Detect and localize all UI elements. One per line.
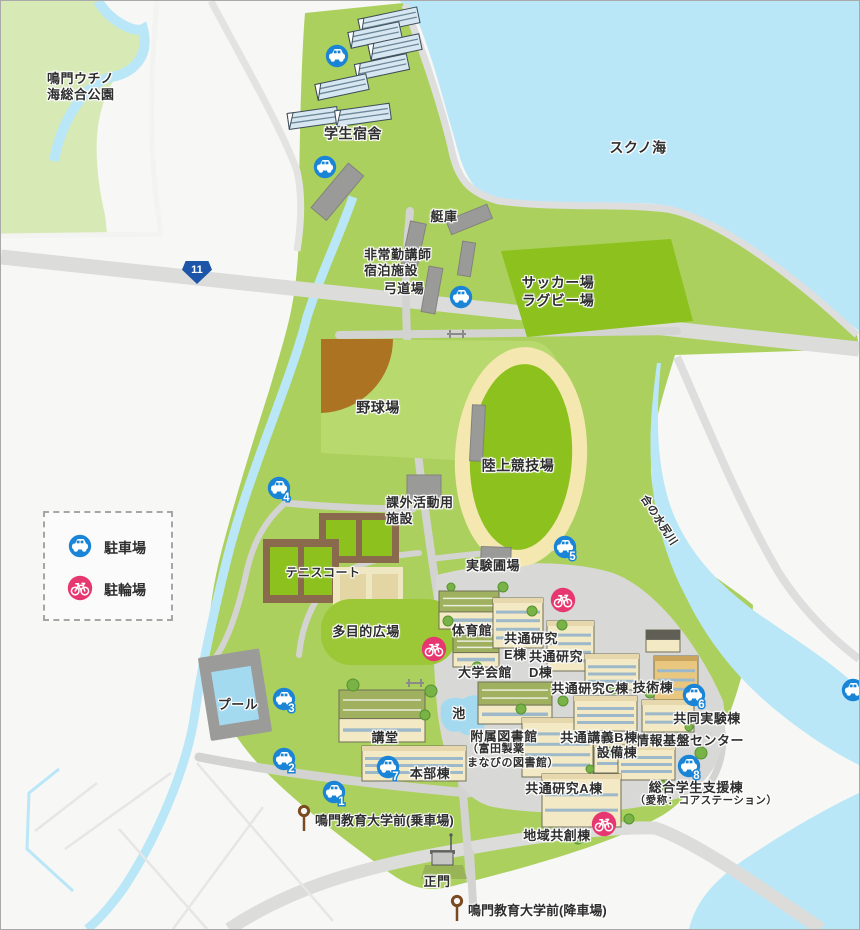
label-tennis-courts: テニスコート xyxy=(285,566,360,581)
label-auditorium: 講堂 xyxy=(371,730,398,746)
label-baseball-field: 野球場 xyxy=(356,399,400,417)
label-extracurricular: 課外活動用 施設 xyxy=(386,495,454,528)
parking-icon xyxy=(838,675,860,705)
legend-bicycle-row: 駐輪場 xyxy=(65,569,171,611)
label-river-name: 合の水尻川 xyxy=(637,493,680,549)
bus-stop-icon xyxy=(297,804,311,835)
label-library-sub: （富田製薬 まなびの図書館） xyxy=(467,743,559,771)
campus-map: 11 駐車場 駐輪場 鳴門ウチノ 海総合公園学生宿舎スクノ海艇庫非常勤講師 宿泊… xyxy=(0,0,860,930)
parking-icon-1: 1 xyxy=(319,777,349,807)
svg-text:2: 2 xyxy=(288,763,294,774)
svg-text:6: 6 xyxy=(698,699,704,710)
label-joint-lab: 共同実験棟 xyxy=(673,711,741,727)
parking-icon xyxy=(310,152,340,182)
bicycle-icon-2 xyxy=(419,634,449,664)
parking-icon xyxy=(446,282,476,312)
parking-icon-3: 3 xyxy=(269,684,299,714)
svg-text:4: 4 xyxy=(283,492,290,503)
svg-text:3: 3 xyxy=(288,703,294,714)
label-boathouse: 艇庫 xyxy=(430,209,457,225)
bus-stop-1: 鳴門教育大学前(乗車場) xyxy=(297,805,454,833)
route-11-badge: 11 xyxy=(182,261,212,284)
label-info-center: 情報基盤センター xyxy=(636,733,744,749)
bus-stop-label: 鳴門教育大学前(降車場) xyxy=(468,900,607,919)
label-sea-name: スクノ海 xyxy=(609,139,666,157)
label-student-support-alias: （愛称：コアステーション） xyxy=(635,794,778,807)
label-multipurpose-plaza: 多目的広場 xyxy=(332,624,400,640)
label-lecturer-lodging: 非常勤講師 宿泊施設 xyxy=(364,247,432,280)
bus-stop-label: 鳴門教育大学前(乗車場) xyxy=(315,810,454,829)
label-pond: 池 xyxy=(452,706,466,722)
label-research-d: 共通研究 D棟 xyxy=(529,649,583,682)
map-legend: 駐車場 駐輪場 xyxy=(43,511,173,621)
label-overlay: 11 駐車場 駐輪場 鳴門ウチノ 海総合公園学生宿舎スクノ海艇庫非常勤講師 宿泊… xyxy=(1,1,859,929)
label-archery-range: 弓道場 xyxy=(384,281,425,297)
label-athletics-track: 陸上競技場 xyxy=(482,457,555,475)
label-research-c: 共通研究C棟 xyxy=(551,681,628,697)
legend-parking-label: 駐車場 xyxy=(104,538,146,558)
label-gymnasium: 体育館 xyxy=(452,623,493,639)
bus-stop-2: 鳴門教育大学前(降車場) xyxy=(450,895,607,923)
svg-text:8: 8 xyxy=(693,770,700,781)
parking-icon xyxy=(322,41,352,71)
parking-icon-6: 6 xyxy=(679,680,709,710)
bicycle-icon xyxy=(65,573,95,608)
parking-icon-2: 2 xyxy=(269,744,299,774)
label-soccer-rugby: サッカー場 ラグビー場 xyxy=(522,275,595,310)
bus-stop-icon xyxy=(450,894,464,925)
label-student-dorm: 学生宿舎 xyxy=(324,125,382,143)
parking-icon-5: 5 xyxy=(550,532,580,562)
parking-icon xyxy=(65,531,95,566)
label-community-bldg: 地域共創棟 xyxy=(523,828,591,844)
label-university-hall: 大学会館 xyxy=(458,665,512,681)
svg-text:7: 7 xyxy=(392,771,398,782)
legend-bicycle-label: 駐輪場 xyxy=(104,580,146,600)
bicycle-icon-1 xyxy=(548,585,578,615)
parking-icon-8: 8 xyxy=(674,751,704,781)
label-experiment-field: 実験圃場 xyxy=(466,558,520,574)
svg-text:5: 5 xyxy=(569,551,576,562)
label-main-gate: 正門 xyxy=(423,874,450,890)
label-hq-bldg: 本部棟 xyxy=(410,766,451,782)
label-facilities-bldg: 設備棟 xyxy=(597,745,638,761)
label-pool: プール xyxy=(218,697,259,713)
label-park-name: 鳴門ウチノ 海総合公園 xyxy=(47,71,115,104)
label-lecture-b: 共通講義B棟 xyxy=(560,730,637,746)
parking-icon-4: 4 xyxy=(264,473,294,503)
parking-icon-7: 7 xyxy=(373,752,403,782)
legend-parking-row: 駐車場 xyxy=(65,527,171,569)
label-technical-bldg: 技術棟 xyxy=(633,680,674,696)
bicycle-icon-3 xyxy=(589,809,619,839)
label-research-a: 共通研究A棟 xyxy=(525,781,602,797)
